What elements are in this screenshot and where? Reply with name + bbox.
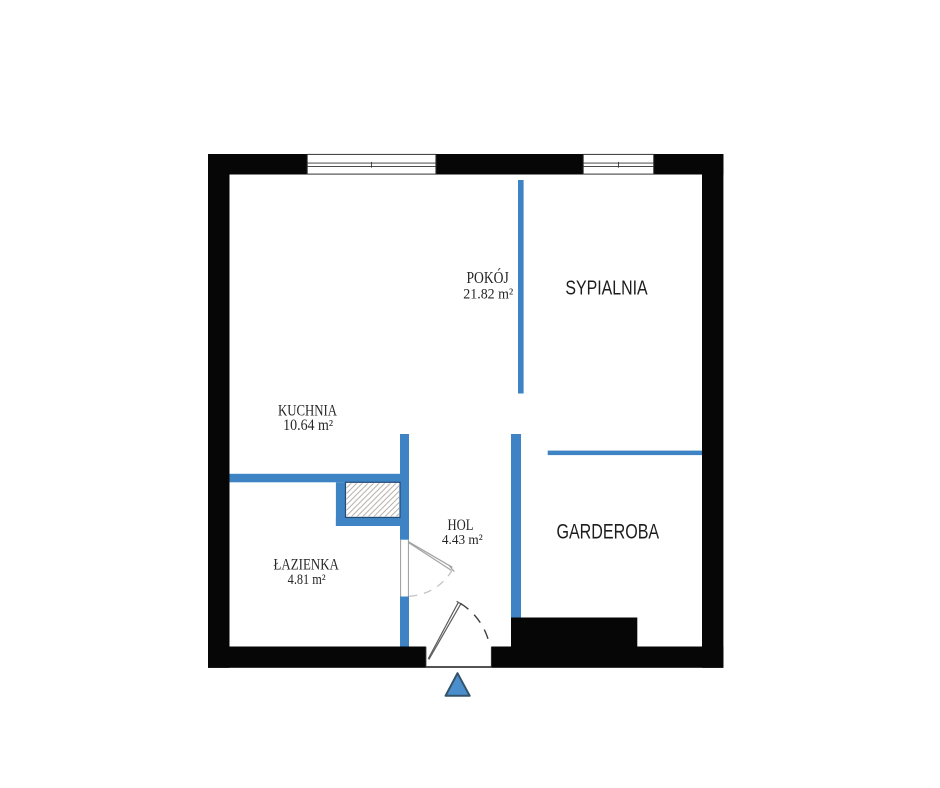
svg-text:4.81 m²: 4.81 m² <box>288 571 326 587</box>
svg-text:SYPIALNIA: SYPIALNIA <box>565 277 648 299</box>
svg-text:4.43 m²: 4.43 m² <box>442 532 483 547</box>
svg-text:10.64 m²: 10.64 m² <box>283 417 333 434</box>
svg-text:POKÓJ: POKÓJ <box>466 269 508 288</box>
svg-text:GARDEROBA: GARDEROBA <box>556 520 659 544</box>
svg-text:21.82 m²: 21.82 m² <box>463 286 513 303</box>
